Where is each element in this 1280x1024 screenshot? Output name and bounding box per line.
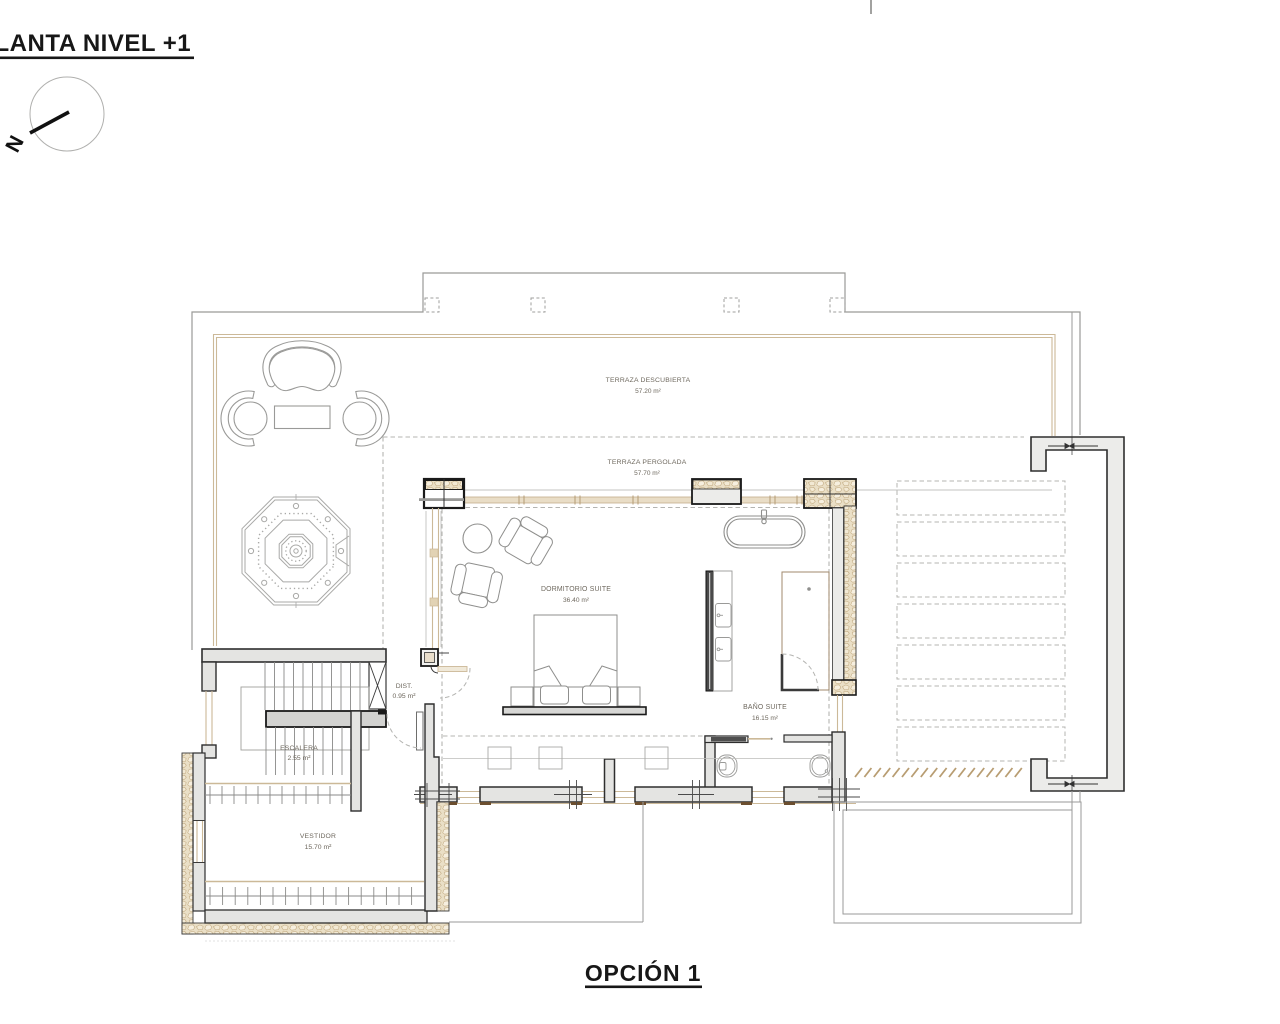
svg-text:DORMITORIO SUITE: DORMITORIO SUITE [541, 586, 611, 593]
svg-text:0.95 m²: 0.95 m² [392, 693, 416, 700]
svg-text:ESCALERA: ESCALERA [280, 745, 318, 752]
svg-text:VESTIDOR: VESTIDOR [300, 833, 336, 840]
svg-text:TERRAZA PERGOLADA: TERRAZA PERGOLADA [608, 459, 687, 466]
svg-text:15.70 m²: 15.70 m² [305, 844, 333, 851]
svg-text:TERRAZA DESCUBIERTA: TERRAZA DESCUBIERTA [606, 377, 691, 384]
svg-text:2.55 m²: 2.55 m² [287, 755, 311, 762]
svg-text:16.15 m²: 16.15 m² [752, 715, 779, 722]
svg-text:BAÑO SUITE: BAÑO SUITE [743, 702, 787, 711]
svg-text:36.40 m²: 36.40 m² [563, 597, 590, 604]
svg-text:57.20 m²: 57.20 m² [635, 388, 661, 395]
svg-text:57.70 m²: 57.70 m² [634, 470, 660, 477]
svg-text:PLANTA NIVEL +1: PLANTA NIVEL +1 [0, 30, 191, 57]
svg-text:OPCIÓN 1: OPCIÓN 1 [585, 959, 701, 986]
svg-text:DIST.: DIST. [396, 683, 413, 690]
